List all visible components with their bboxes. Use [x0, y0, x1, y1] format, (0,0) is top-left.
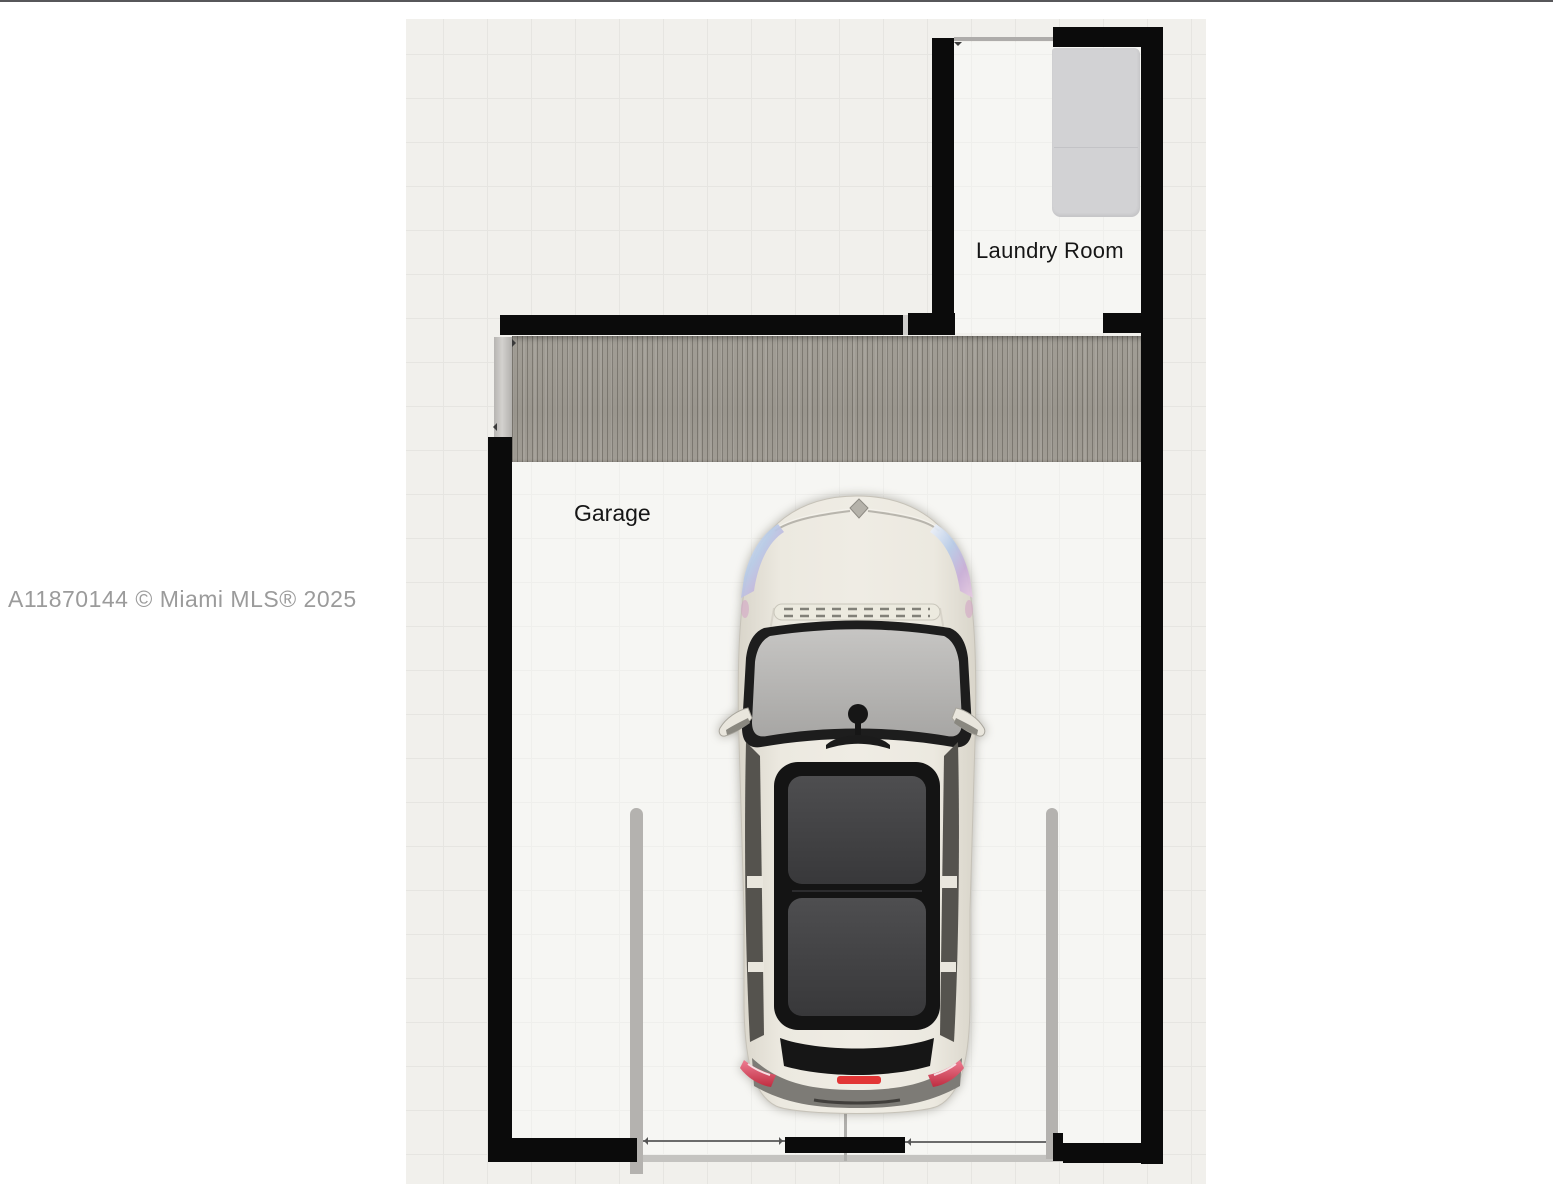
laundry-window-line — [954, 37, 1053, 41]
wall-bottom-left — [488, 1138, 637, 1162]
wall-laundry-bottom — [1103, 313, 1141, 333]
car-sunroof-panel-rear — [788, 898, 926, 1016]
screenshot-root: { "page": { "background_color": "#ffffff… — [0, 0, 1553, 1200]
car-c-pillar-left — [748, 962, 764, 972]
garage-room-label: Garage — [574, 500, 651, 527]
mls-watermark-text: A11870144 © Miami MLS® 2025 — [8, 586, 357, 613]
floorplan-canvas: Garage Laundry Room — [406, 19, 1206, 1184]
door-swing-arrow-icon — [512, 339, 520, 347]
image-top-border — [0, 0, 1553, 2]
door-swing-arrow-icon — [489, 423, 497, 431]
opening-measure-line-right — [905, 1141, 1053, 1143]
car-headlight-accent-right — [965, 600, 973, 618]
car-brake-light — [837, 1076, 881, 1084]
car-b-pillar-right — [941, 876, 957, 888]
wall-bottom-connector — [1053, 1133, 1063, 1161]
opening-measure-line-left — [642, 1140, 785, 1142]
door-swing-arrow-icon — [954, 42, 962, 50]
car-c-pillar-right — [940, 962, 956, 972]
pillar-left — [630, 808, 643, 1174]
car-cowl-vent — [774, 604, 940, 620]
car-rearview-mirror-stem — [855, 722, 861, 735]
wall-garage-top — [500, 315, 903, 335]
washer-dryer-unit — [1052, 48, 1140, 217]
car-b-pillar-left — [747, 876, 763, 888]
wall-bottom-middle — [785, 1137, 905, 1153]
car-sunroof-panel-front — [788, 776, 926, 884]
garage-door-panel — [512, 336, 1141, 462]
laundry-room-label: Laundry Room — [976, 238, 1124, 264]
wall-bottom-right — [1063, 1143, 1163, 1163]
wall-right — [1141, 27, 1163, 1164]
wall-laundry-left — [932, 38, 954, 335]
washer-dryer-seam — [1054, 147, 1138, 148]
wall-garage-left — [488, 437, 512, 1162]
car-headlight-accent-left — [741, 600, 749, 618]
car-top-view — [718, 490, 986, 1120]
pillar-right — [1046, 808, 1058, 1159]
driveway-threshold-strip — [637, 1155, 1063, 1162]
car-rearview-mirror — [848, 704, 868, 724]
